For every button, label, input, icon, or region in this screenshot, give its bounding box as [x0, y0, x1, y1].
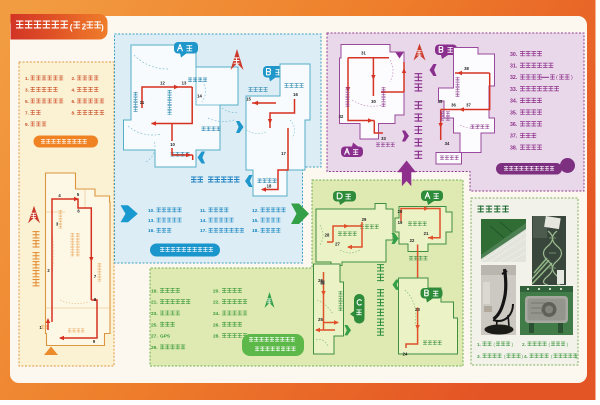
svg-text:37.: 37.	[510, 134, 518, 140]
svg-text:38.: 38.	[510, 145, 518, 151]
svg-text:27: 27	[335, 242, 340, 247]
svg-text:21: 21	[424, 231, 429, 236]
svg-text:10: 10	[170, 142, 175, 147]
svg-text:30.: 30.	[510, 52, 518, 58]
svg-text:38: 38	[464, 66, 469, 71]
svg-text:34.: 34.	[510, 99, 518, 105]
svg-text:29.: 29.	[151, 345, 158, 351]
svg-text:1.: 1.	[25, 76, 29, 81]
svg-text:33: 33	[381, 136, 386, 141]
svg-text:24.: 24.	[213, 311, 220, 317]
svg-text:3.: 3.	[477, 354, 481, 359]
svg-text:34: 34	[445, 141, 450, 146]
svg-text:(: (	[70, 23, 73, 32]
svg-text:): )	[571, 75, 573, 81]
svg-text:12.: 12.	[252, 208, 259, 214]
svg-text:31.: 31.	[510, 64, 518, 70]
svg-text:23: 23	[415, 307, 420, 312]
svg-text:31: 31	[361, 51, 366, 56]
svg-text:1.: 1.	[477, 342, 481, 347]
svg-text:2: 2	[82, 22, 87, 31]
svg-text:19.: 19.	[151, 288, 158, 294]
svg-text:5.: 5.	[25, 99, 29, 104]
svg-text:GPS: GPS	[160, 334, 171, 340]
svg-text:3.: 3.	[25, 88, 29, 93]
svg-text:(: (	[556, 75, 558, 81]
svg-text:2.: 2.	[72, 76, 76, 81]
svg-text:29: 29	[362, 217, 367, 222]
svg-text:18: 18	[267, 184, 272, 189]
svg-text:37: 37	[466, 103, 471, 108]
svg-text:16: 16	[293, 92, 298, 97]
svg-text:15.: 15.	[252, 218, 259, 224]
svg-text:25: 25	[318, 317, 323, 322]
svg-text:7.: 7.	[25, 111, 29, 116]
svg-text:14.: 14.	[200, 218, 207, 224]
svg-text:18.: 18.	[252, 228, 259, 234]
svg-text:2.: 2.	[522, 342, 526, 347]
svg-text:23.: 23.	[151, 311, 158, 317]
svg-text:28: 28	[325, 233, 330, 238]
svg-text:32: 32	[339, 114, 344, 119]
svg-text:11: 11	[140, 100, 145, 105]
svg-text:19: 19	[398, 220, 403, 225]
svg-text:35.: 35.	[510, 110, 518, 116]
svg-text:35: 35	[438, 99, 443, 104]
svg-text:24: 24	[403, 352, 408, 357]
svg-text:27.: 27.	[151, 334, 158, 340]
svg-text:20.: 20.	[213, 288, 220, 294]
svg-text:12: 12	[160, 81, 165, 86]
svg-text:15: 15	[246, 97, 251, 102]
svg-text:21.: 21.	[151, 300, 158, 306]
svg-text:9.: 9.	[25, 122, 29, 127]
svg-text:4.: 4.	[524, 354, 528, 359]
svg-text:4.: 4.	[72, 88, 76, 93]
svg-text:28.: 28.	[213, 334, 220, 340]
svg-text:11.: 11.	[200, 208, 206, 214]
svg-text:33.: 33.	[510, 87, 518, 93]
svg-text:30: 30	[371, 99, 376, 104]
svg-text:14: 14	[197, 94, 202, 99]
svg-text:20: 20	[398, 209, 403, 214]
svg-text:36: 36	[451, 103, 456, 108]
svg-text:26.: 26.	[213, 322, 220, 328]
svg-text:25.: 25.	[151, 322, 158, 328]
svg-text:22.: 22.	[213, 300, 220, 306]
svg-text:10.: 10.	[148, 208, 155, 214]
svg-text:13: 13	[182, 81, 187, 86]
svg-text:16.: 16.	[148, 228, 155, 234]
svg-text:32.: 32.	[510, 75, 518, 81]
svg-text:13.: 13.	[148, 218, 155, 224]
svg-text:): )	[101, 23, 104, 32]
svg-text:6.: 6.	[72, 99, 76, 104]
svg-text:22: 22	[410, 238, 415, 243]
svg-text:8.: 8.	[72, 111, 76, 116]
svg-text:17.: 17.	[200, 228, 207, 234]
svg-text:36.: 36.	[510, 122, 518, 128]
svg-text:17: 17	[281, 151, 286, 156]
